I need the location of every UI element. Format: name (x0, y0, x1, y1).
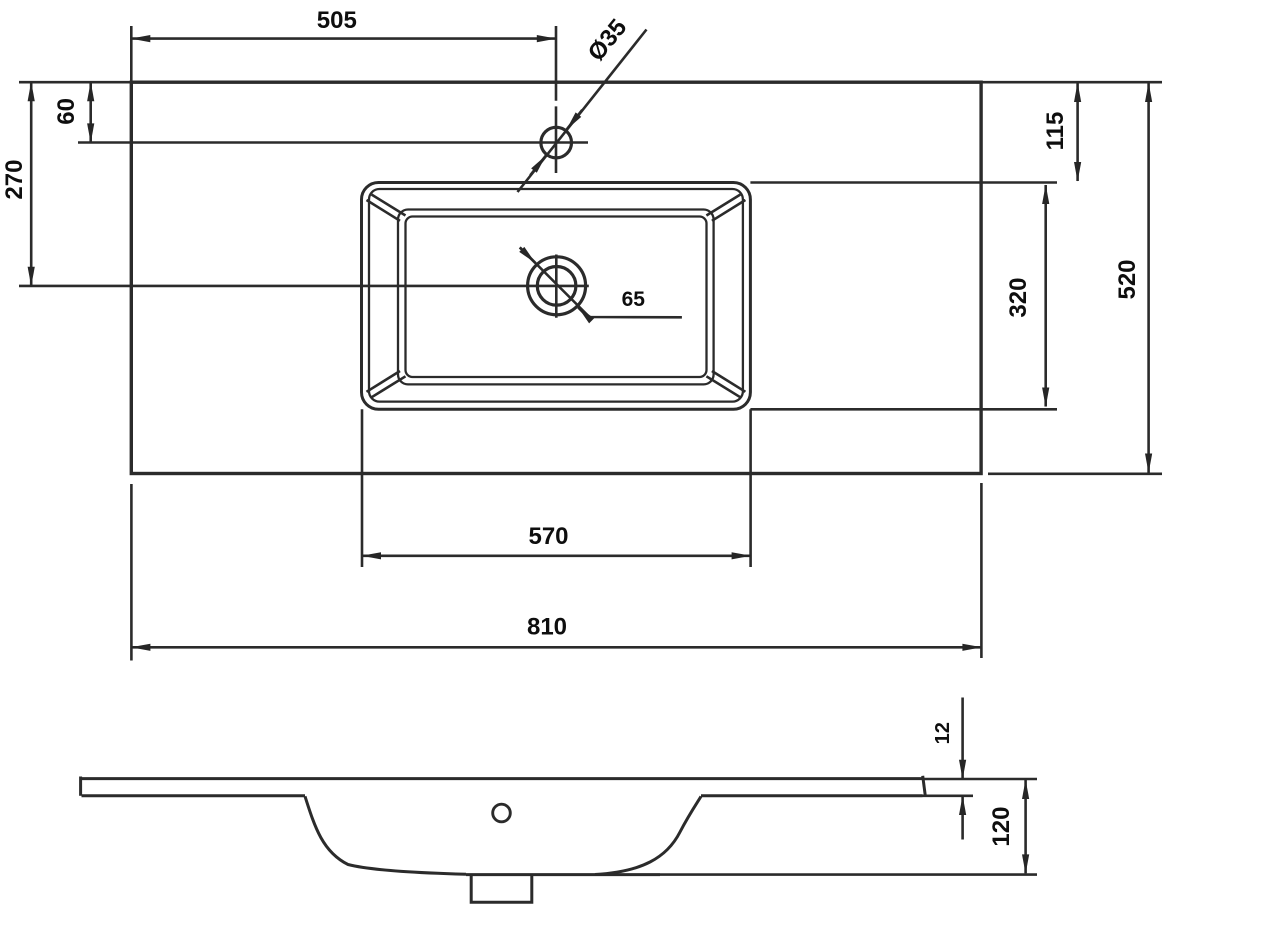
svg-text:810: 810 (527, 614, 567, 641)
svg-text:60: 60 (53, 98, 80, 125)
svg-text:320: 320 (1005, 278, 1032, 318)
svg-text:115: 115 (1042, 112, 1069, 151)
svg-text:12: 12 (932, 722, 954, 744)
svg-text:65: 65 (622, 288, 646, 311)
svg-text:520: 520 (1114, 259, 1141, 299)
svg-text:120: 120 (988, 807, 1015, 847)
svg-text:270: 270 (1, 160, 28, 200)
svg-text:570: 570 (528, 523, 568, 550)
svg-text:505: 505 (317, 7, 357, 34)
